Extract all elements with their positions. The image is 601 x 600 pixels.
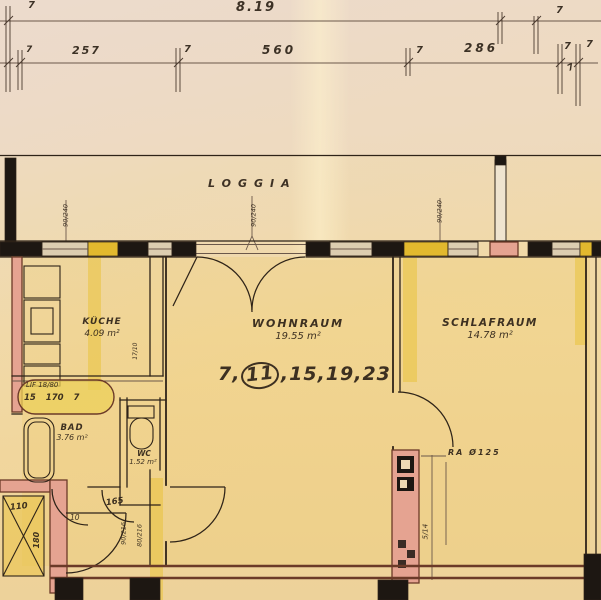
dim-tick-3: 7 <box>26 46 32 55</box>
apartment-numbers-prefix: 7, <box>218 363 240 385</box>
dim-10: 10 <box>70 514 80 522</box>
duct-dim: 5/14 <box>422 512 429 552</box>
window-dim-door: 90/240 <box>251 193 258 237</box>
room-area-schlafraum: 14.78 m² <box>430 331 550 342</box>
kitchen-flue-dim: 17/10 <box>133 327 139 375</box>
window-dim-kitchen: 90/240 <box>63 193 70 237</box>
shaft-width-dim: 110 <box>10 502 29 513</box>
room-name-kueche: KÜCHE <box>64 318 140 327</box>
exterior-wall <box>0 241 601 257</box>
loggia-label: LOGGIA <box>208 178 297 190</box>
lift-label: LIF 18/80 <box>26 382 58 389</box>
dim-seg-middle: 560 <box>262 44 296 57</box>
dim-tick-6: 7 <box>564 42 571 53</box>
room-area-wohnraum: 19.55 m² <box>238 332 358 343</box>
window-dim-schlafraum: 90/240 <box>437 189 444 233</box>
dim-tick-7: 7 <box>586 40 593 51</box>
duct-label: RA Ø125 <box>448 449 501 457</box>
room-name-wc: WC <box>124 450 164 458</box>
dim-seg-left: 257 <box>72 45 101 57</box>
room-name-schlafraum: SCHLAFRAUM <box>430 318 550 329</box>
shaft-depth-dim: 180 <box>33 525 41 555</box>
room-area-kueche: 4.09 m² <box>64 330 140 339</box>
dim-overall: 8.19 <box>236 1 276 15</box>
lift-dims: 15 170 7 <box>24 394 79 403</box>
dim-tick-5: 7 <box>416 46 423 57</box>
room-area-bad: 3.76 m² <box>40 434 104 442</box>
apartment-numbers-suffix: ,15,19,23 <box>281 363 391 385</box>
dim-tick-2: 7 <box>556 6 563 17</box>
dim-tick-4: 7 <box>184 45 191 56</box>
apartment-numbers: 7,11,15,19,23 <box>218 362 391 389</box>
room-name-wohnraum: WOHNRAUM <box>238 318 358 330</box>
door-dim-b: 80/216 <box>137 515 144 555</box>
dimension-lines <box>0 6 601 250</box>
room-name-bad: BAD <box>40 424 104 433</box>
dim-seg-right: 286 <box>464 42 498 55</box>
dim-tick-1: 7 <box>28 1 35 12</box>
door-dim-a: 90/216 <box>121 513 128 553</box>
floor-plan: 8.19 7 7 257 7 7 560 7 286 7 7 7 LOGGIA … <box>0 0 601 600</box>
room-area-wc: 1.52 m² <box>120 459 166 466</box>
apartment-number-circled: 11 <box>240 360 281 391</box>
yellow-wall-highlights <box>3 243 590 600</box>
floorplan-linework <box>0 0 601 600</box>
